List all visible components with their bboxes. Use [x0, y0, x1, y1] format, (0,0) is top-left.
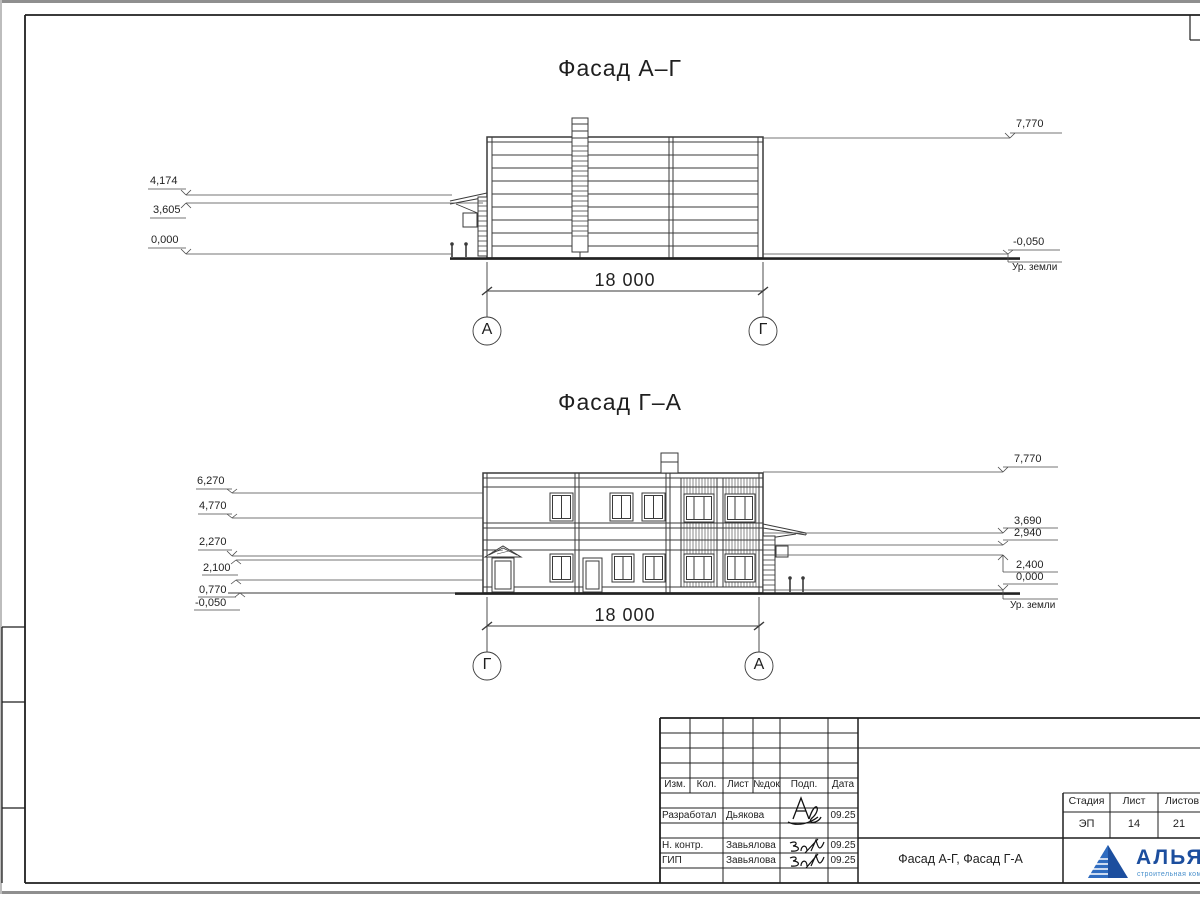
- stage-value: ЭП: [1063, 819, 1110, 831]
- titleblock-col-data: Дата: [828, 780, 858, 791]
- signer-role: Н. контр.: [662, 841, 703, 852]
- drawing-sheet: { "colors": { "accent": "#1c4e9e", "ligh…: [0, 0, 1200, 900]
- elevation-mark: 0,000: [1016, 572, 1044, 584]
- axis-label: Г: [749, 322, 777, 339]
- elevation-mark: 3,605: [153, 205, 181, 217]
- facade1-title: Фасад А–Г: [470, 56, 770, 80]
- elevation-mark: 6,270: [197, 476, 225, 488]
- axis-label: А: [745, 657, 773, 674]
- elevation-mark: 4,174: [150, 176, 178, 188]
- signer-role: ГИП: [662, 856, 682, 867]
- sheets-total: 21: [1158, 819, 1200, 831]
- signer-name: Завьялова: [726, 856, 776, 867]
- titleblock-col-izm: Изм.: [660, 780, 690, 791]
- elevation-mark: 7,770: [1014, 454, 1042, 466]
- stage-col: Листов: [1158, 796, 1200, 807]
- margin-boxes: [2, 627, 25, 883]
- elevation-mark: 2,400: [1016, 560, 1044, 572]
- elevation-mark: 0,000: [151, 235, 179, 247]
- doc-title: Фасад А-Г, Фасад Г-А: [858, 853, 1063, 866]
- elevation-mark: 7,770: [1016, 119, 1044, 131]
- signer-date: 09.25: [828, 856, 858, 867]
- dimension-label: 18 000: [560, 271, 690, 290]
- frame: [25, 15, 1200, 883]
- corner-box: [1190, 15, 1200, 40]
- dimension-label: 18 000: [560, 606, 690, 625]
- facade2-title: Фасад Г–А: [470, 390, 770, 414]
- signer-date: 09.25: [828, 811, 858, 822]
- elevation-mark: -0,050: [1013, 237, 1044, 249]
- facade2-drawing: [228, 453, 1020, 594]
- sheet-number: 14: [1110, 819, 1158, 831]
- elevation-mark: -0,050: [195, 598, 226, 610]
- signer-date: 09.25: [828, 841, 858, 852]
- facade1-drawing: [450, 118, 1020, 259]
- axis-label: А: [473, 322, 501, 339]
- titleblock-col-ndok: №док: [753, 780, 780, 791]
- titleblock-col-kol: Кол.: [690, 780, 723, 791]
- signer-role: Разработал: [662, 811, 716, 822]
- elevation-mark: 2,270: [199, 537, 227, 549]
- titleblock-col-list: Лист: [723, 780, 753, 791]
- logo-subtitle: строительная компания: [1137, 871, 1200, 878]
- signer-name: Завьялова: [726, 841, 776, 852]
- stage-col: Лист: [1110, 796, 1158, 807]
- linework-svg: [0, 0, 1200, 900]
- elevation-mark: 2,100: [203, 563, 231, 575]
- stage-col: Стадия: [1063, 796, 1110, 807]
- axis-label: Г: [473, 657, 501, 674]
- logo-pyramid: [1088, 845, 1128, 878]
- titleblock-col-podp: Подп.: [780, 780, 828, 791]
- signer-name: Дьякова: [726, 811, 764, 822]
- facade1-leaders: [148, 133, 1062, 262]
- ground-level-label: Ур. земли: [1012, 263, 1057, 274]
- elevation-mark: 3,690: [1014, 516, 1042, 528]
- ground-level-label: Ур. земли: [1010, 601, 1055, 612]
- facade2-leaders: [194, 467, 1058, 610]
- elevation-mark: 4,770: [199, 501, 227, 513]
- sheet-edges: [0, 0, 1200, 894]
- logo-title: АЛЬЯНС: [1136, 847, 1200, 869]
- elevation-mark: 0,770: [199, 585, 227, 597]
- elevation-mark: 2,940: [1014, 528, 1042, 540]
